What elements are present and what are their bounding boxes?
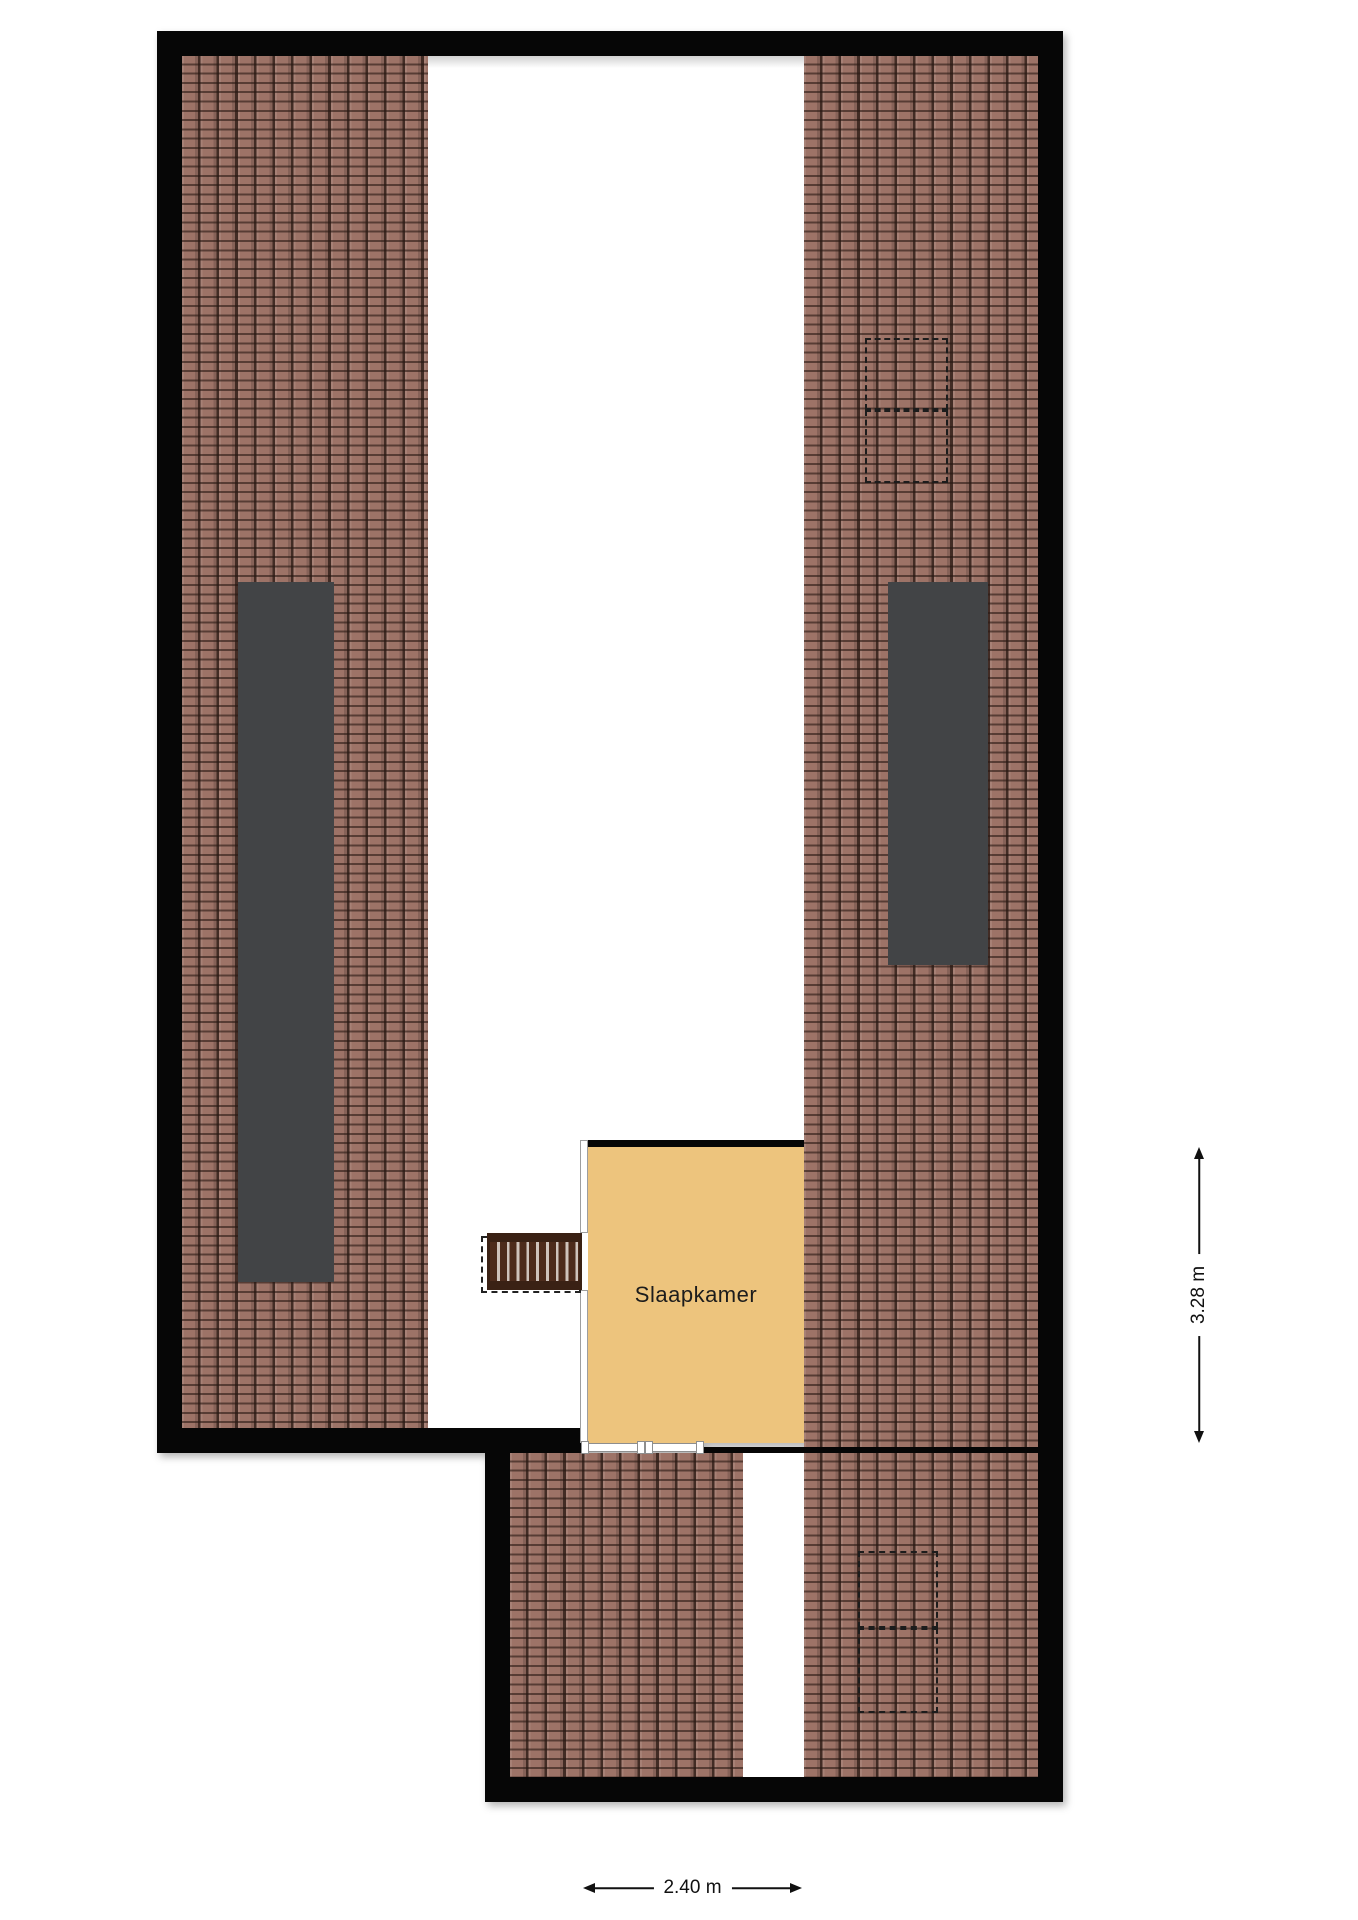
skylight-right	[888, 582, 988, 965]
wall-bottom-main	[157, 1428, 588, 1453]
dimension-vertical: 3.28 m	[1191, 1147, 1207, 1443]
bedroom-label-box: Slaapkamer	[588, 1147, 804, 1443]
dashed-roof-outline-top-upper	[865, 338, 948, 410]
wall-extension-bottom	[485, 1777, 1063, 1802]
dashed-roof-outline-extension-lower	[858, 1628, 938, 1713]
roof-tiles-extension-left	[510, 1453, 743, 1777]
bedroom-window-left	[582, 1443, 644, 1452]
skylight-left	[238, 582, 334, 1282]
wall-right	[1038, 31, 1063, 1802]
dashed-roof-outline-extension-upper	[858, 1551, 938, 1628]
wall-left	[157, 31, 182, 1453]
dimension-vertical-label: 3.28 m	[1188, 1254, 1210, 1336]
bedroom-left-wall-upper	[580, 1140, 588, 1233]
wall-top	[157, 31, 1063, 56]
dimension-horizontal: 2.40 m	[583, 1880, 802, 1896]
arrow-left-icon	[583, 1883, 595, 1893]
bedroom-top-wall	[588, 1140, 804, 1147]
dashed-roof-outline-top-lower	[865, 410, 948, 483]
floorplan-canvas: Slaapkamer 3.28 m 2.40 m	[0, 0, 1358, 1920]
bedroom-window-right	[646, 1443, 703, 1452]
arrow-right-icon	[790, 1883, 802, 1893]
bedroom-label: Slaapkamer	[635, 1282, 757, 1308]
floorplan-drawing: Slaapkamer	[0, 0, 1358, 1920]
dimension-horizontal-label: 2.40 m	[653, 1877, 731, 1899]
bedroom-left-wall-lower	[580, 1290, 588, 1443]
arrow-up-icon	[1194, 1147, 1204, 1159]
wall-extension-left	[485, 1428, 510, 1802]
stairs	[487, 1233, 582, 1290]
wall-divider-extension-top	[703, 1447, 1038, 1453]
arrow-down-icon	[1194, 1431, 1204, 1443]
